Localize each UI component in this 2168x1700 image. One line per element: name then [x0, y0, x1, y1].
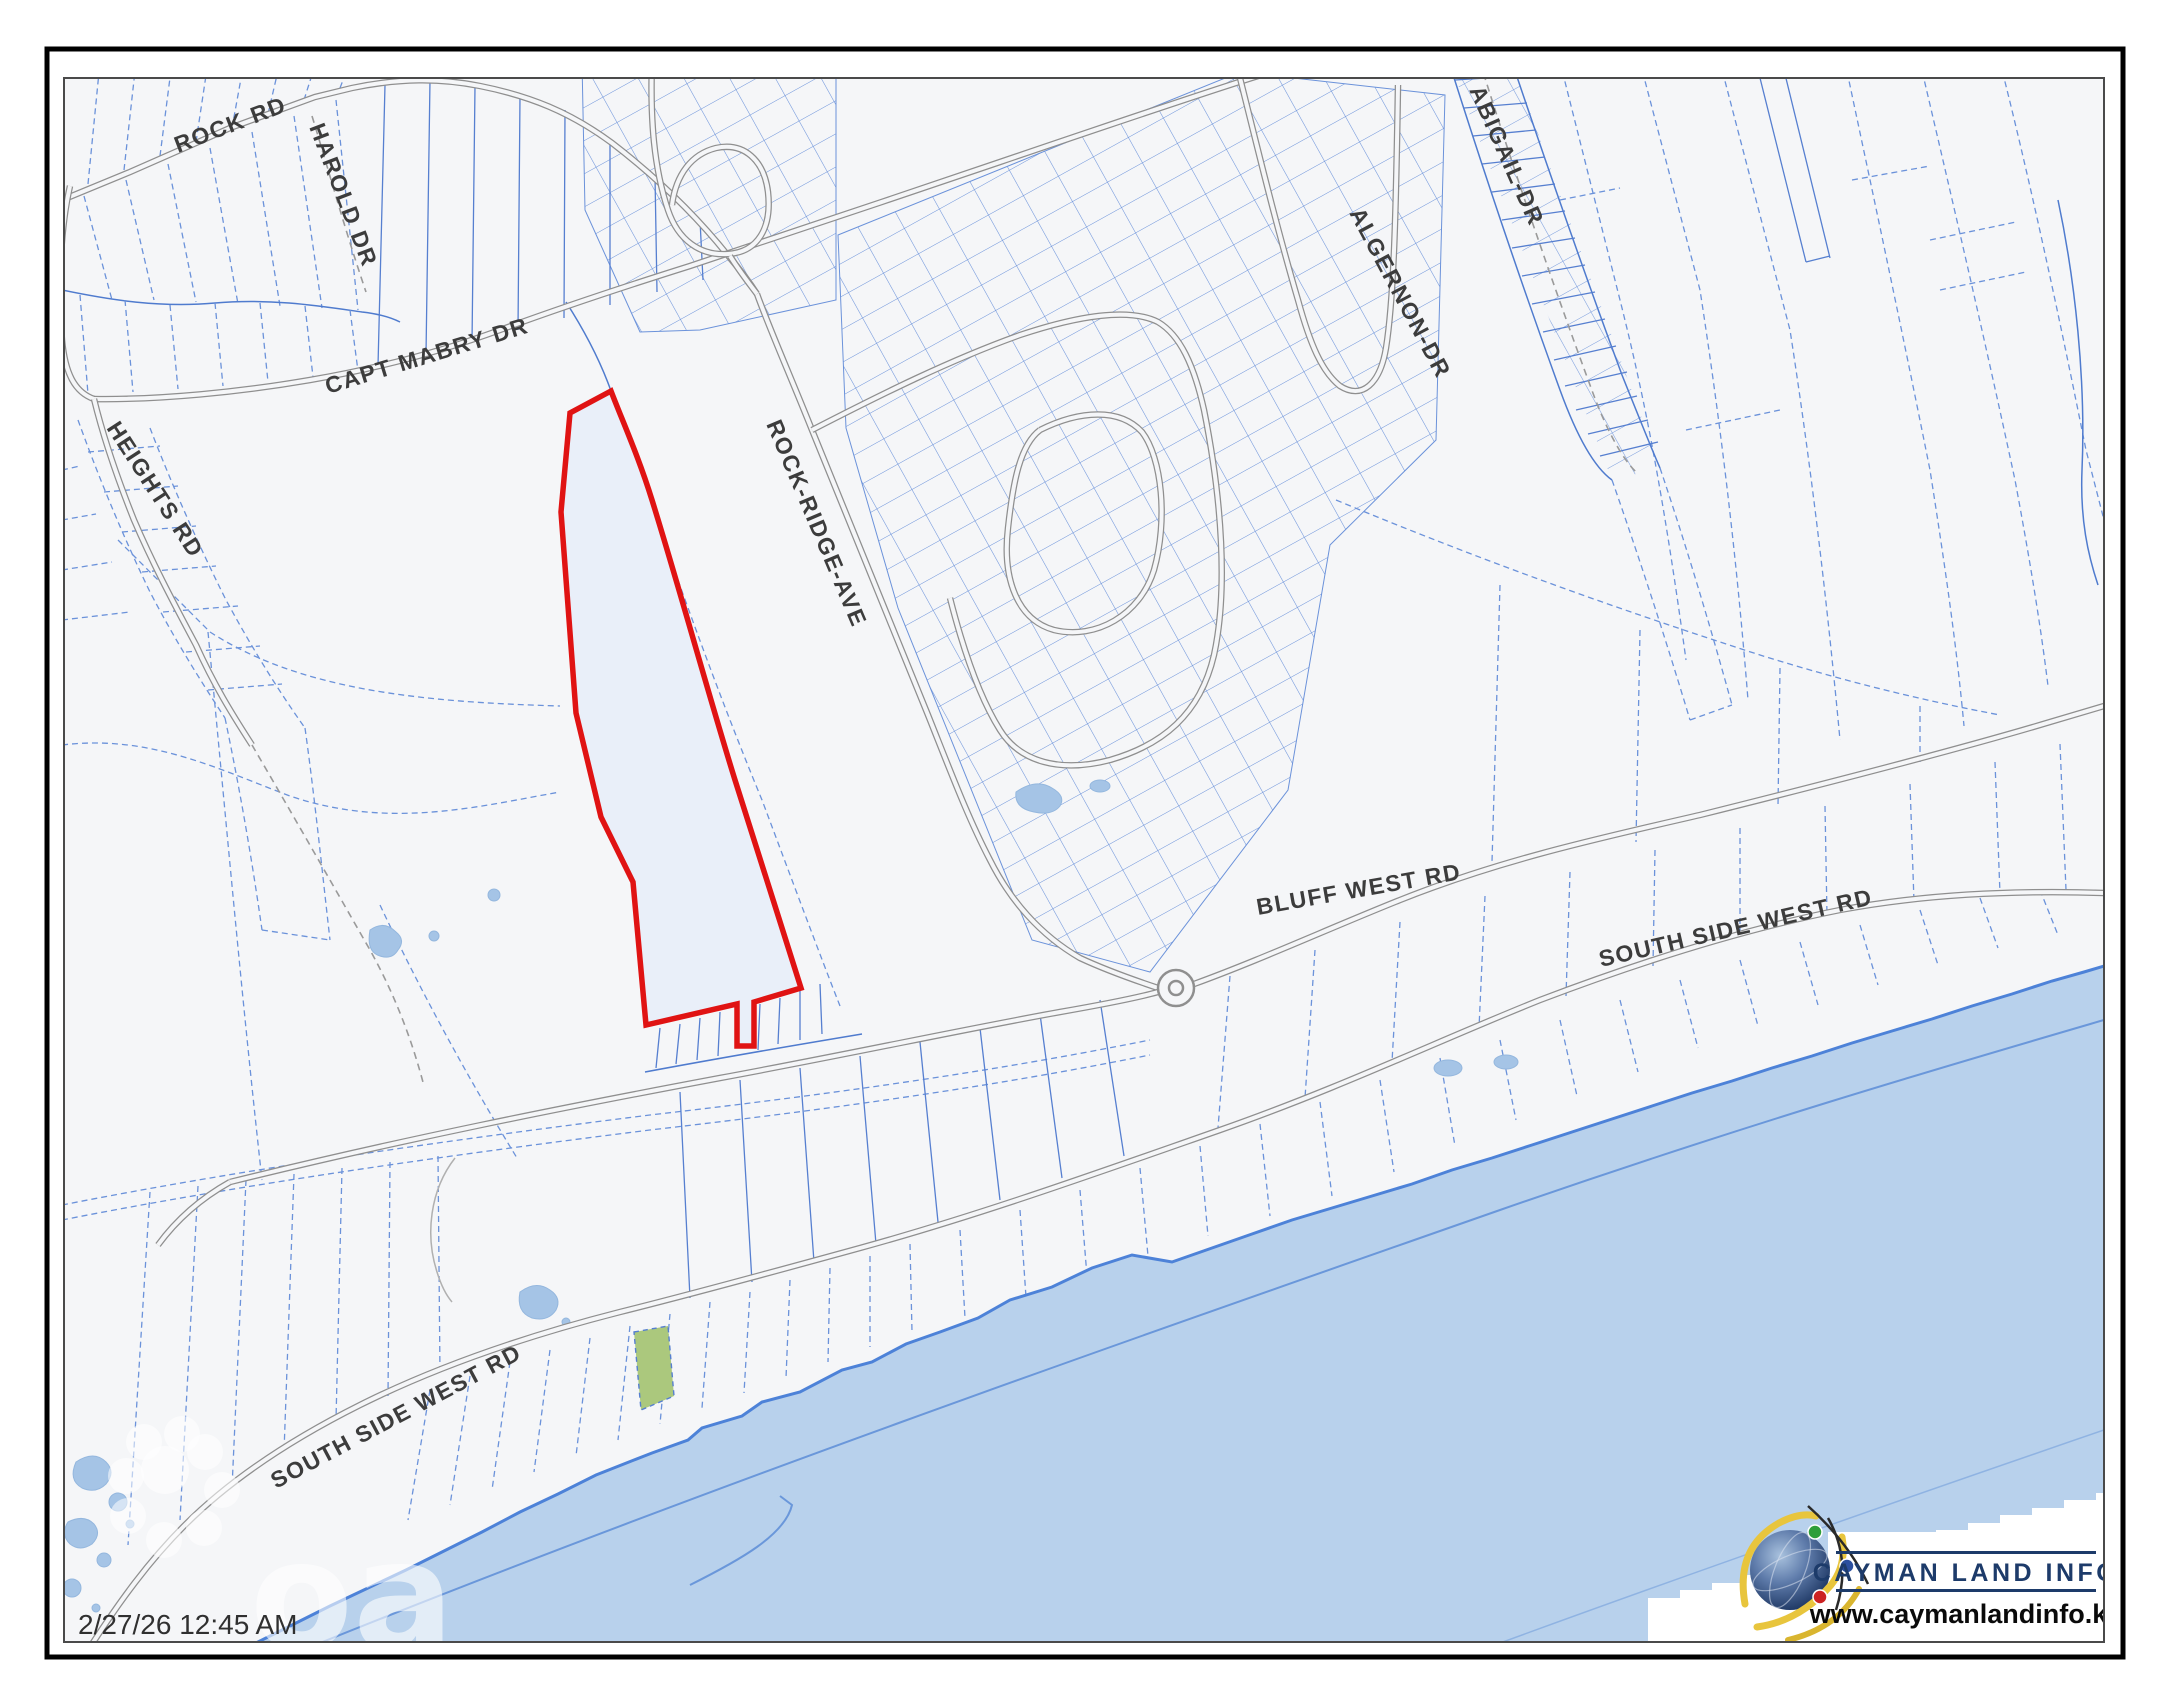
map-export-page: oa ROCK RD HAROLD DR CAPT MABRY DR HEIGH… [0, 0, 2168, 1700]
timestamp: 2/27/26 12:45 AM [78, 1609, 298, 1640]
logo-url[interactable]: www.caymanlandinfo.ky [1809, 1599, 2123, 1629]
green-parcel [634, 1326, 674, 1410]
roundabout [1158, 970, 1194, 1006]
logo-rule-bottom [1836, 1589, 2096, 1592]
map-canvas[interactable]: oa ROCK RD HAROLD DR CAPT MABRY DR HEIGH… [0, 0, 2168, 1700]
logo-title: CAYMAN LAND INFO [1813, 1559, 2119, 1587]
logo-rule-top [1836, 1551, 2096, 1554]
